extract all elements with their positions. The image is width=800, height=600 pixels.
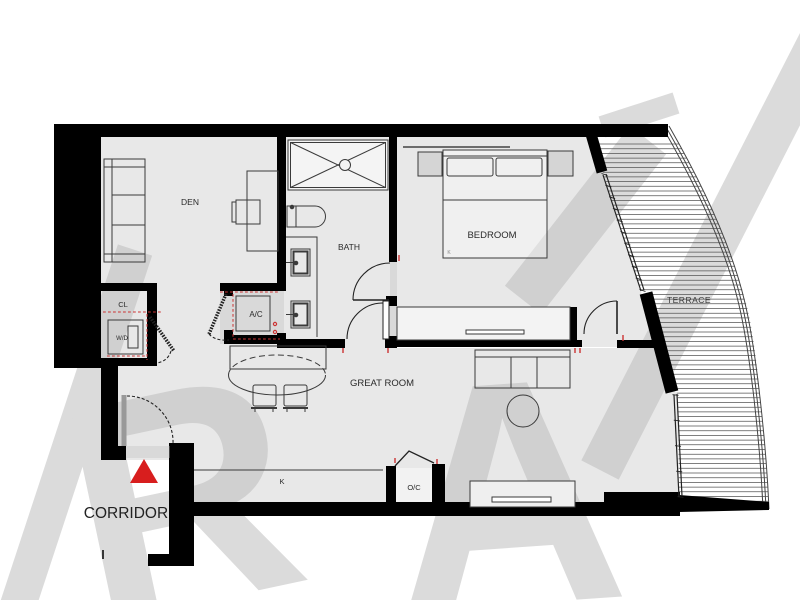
svg-text:O/C: O/C bbox=[407, 483, 421, 492]
svg-text:BEDROOM: BEDROOM bbox=[467, 230, 516, 241]
svg-text:DEN: DEN bbox=[181, 197, 199, 207]
svg-text:K: K bbox=[279, 477, 284, 486]
svg-text:CL: CL bbox=[118, 300, 128, 309]
svg-text:BATH: BATH bbox=[338, 242, 360, 252]
svg-text:CORRIDOR: CORRIDOR bbox=[84, 505, 168, 522]
svg-text:A/C: A/C bbox=[249, 310, 263, 319]
svg-text:TERRACE: TERRACE bbox=[667, 295, 711, 305]
svg-text:GREAT ROOM: GREAT ROOM bbox=[350, 378, 414, 389]
svg-text:W/D: W/D bbox=[116, 336, 128, 342]
